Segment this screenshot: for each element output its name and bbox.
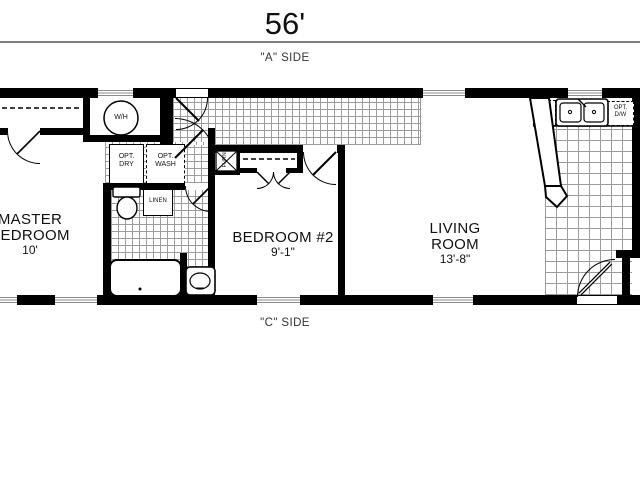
water-heater-label: W/H [104, 114, 138, 121]
snack-bar-end [545, 186, 567, 207]
toilet-tank [113, 187, 140, 197]
bedroom2-label: BEDROOM #2 9'-1" [212, 230, 354, 258]
kitchen-sink-bowl-left [560, 103, 581, 122]
bathtub [110, 260, 181, 296]
furnace-label: FURN [223, 143, 229, 177]
floor-plan: 56' "A" SIDE OPT.DRY [0, 0, 640, 480]
kitchen-sink-bowl-right [584, 103, 604, 122]
master-bedroom-label: MASTER BEDROOM 10' [0, 212, 130, 256]
bath-sink-bowl [190, 273, 210, 289]
side-c-label: "C" SIDE [165, 317, 405, 329]
tub-drain [139, 288, 142, 291]
living-room-label: LIVING ROOM 13'-8" [385, 221, 525, 265]
